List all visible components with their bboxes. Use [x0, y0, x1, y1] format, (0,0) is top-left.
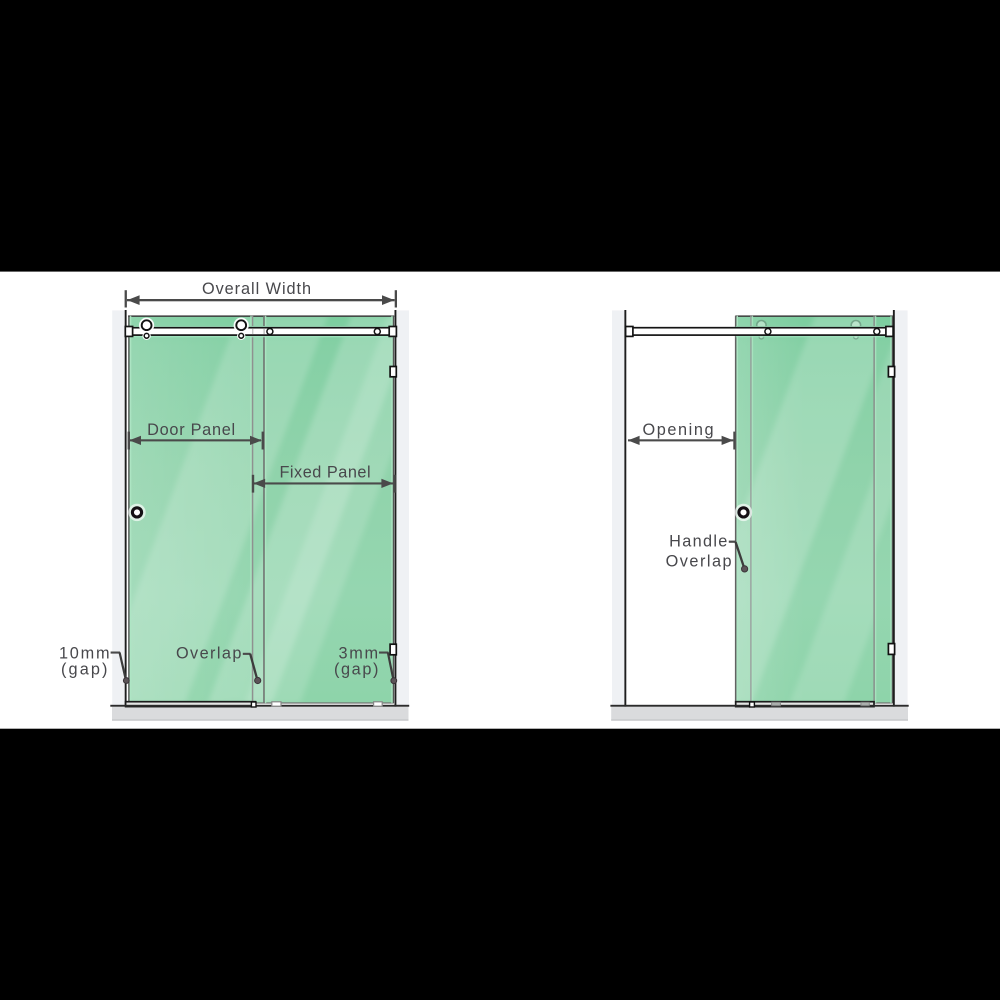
svg-text:(gap): (gap)	[334, 661, 380, 679]
svg-text:Fixed Panel: Fixed Panel	[279, 464, 371, 482]
svg-text:Overall Width: Overall Width	[202, 280, 312, 298]
svg-text:Opening: Opening	[642, 421, 715, 439]
svg-text:Door Panel: Door Panel	[147, 421, 236, 439]
svg-text:3mm: 3mm	[339, 644, 380, 662]
svg-text:10mm: 10mm	[59, 644, 111, 662]
svg-text:Overlap: Overlap	[176, 644, 243, 662]
svg-text:Overlap: Overlap	[666, 553, 734, 571]
svg-text:(gap): (gap)	[61, 661, 110, 679]
svg-text:Handle: Handle	[669, 532, 729, 550]
